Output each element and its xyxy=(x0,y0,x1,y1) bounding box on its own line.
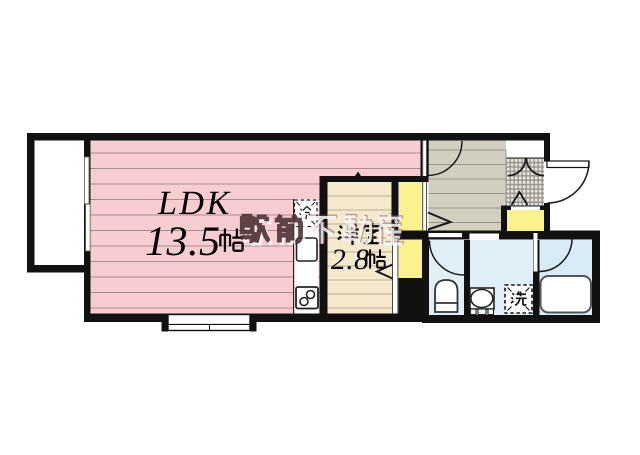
svg-text:13.5: 13.5 xyxy=(145,219,221,265)
svg-text:2.8: 2.8 xyxy=(331,244,369,276)
svg-text:LDK: LDK xyxy=(157,185,232,222)
